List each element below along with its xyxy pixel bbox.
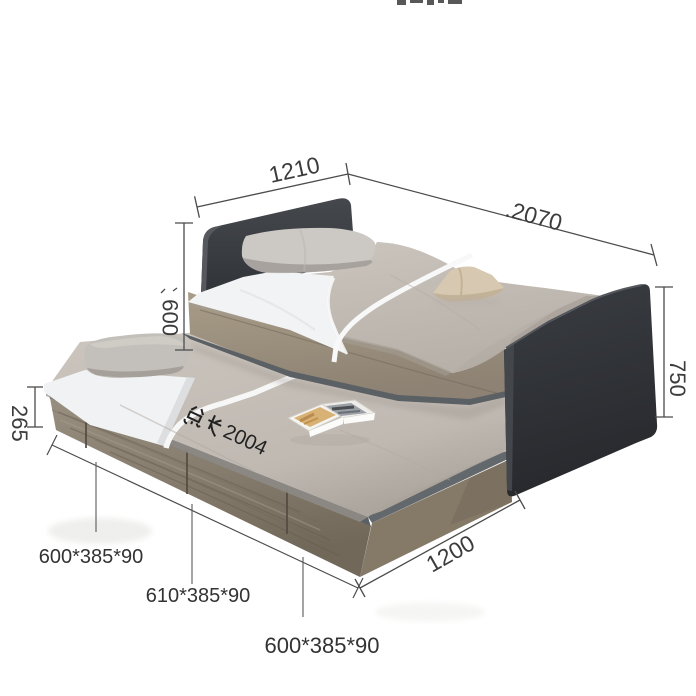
svg-text:600*385*90: 600*385*90 [264, 633, 379, 658]
svg-text:750: 750 [665, 360, 690, 397]
svg-text:009: 009 [158, 299, 183, 336]
svg-text:610*385*90: 610*385*90 [146, 585, 251, 607]
svg-text:265: 265 [7, 405, 32, 442]
svg-text:600*385*90: 600*385*90 [39, 546, 144, 568]
